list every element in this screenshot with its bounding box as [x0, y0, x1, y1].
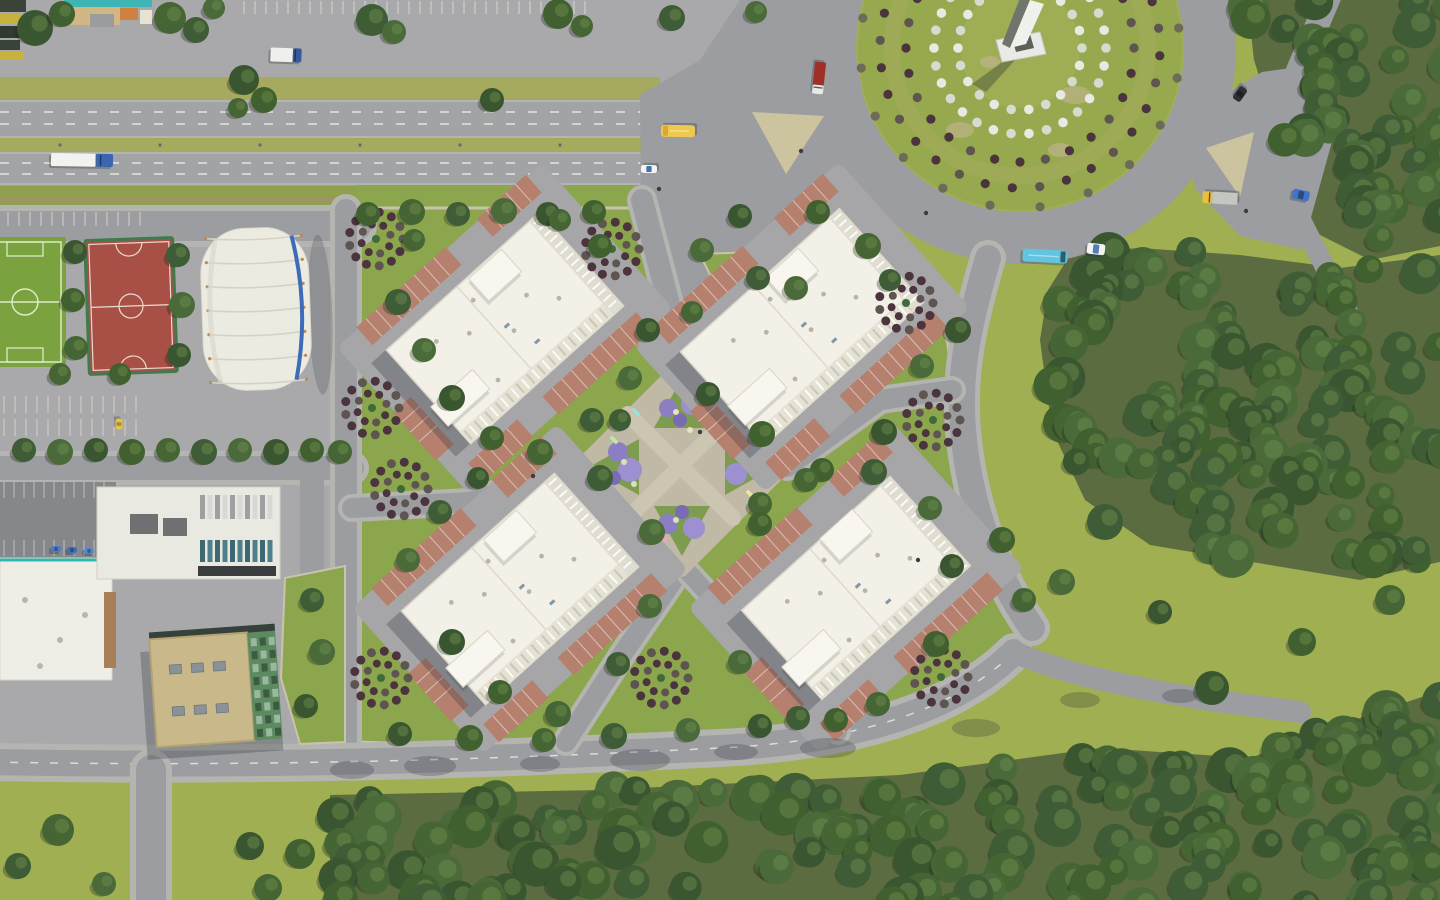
vehicle-police-car[interactable] — [641, 163, 659, 173]
game-viewport[interactable] — [0, 0, 1440, 900]
vehicle-blue-bus[interactable] — [1020, 248, 1068, 265]
vehicle-yellow-bus[interactable] — [661, 123, 697, 138]
pedestrian — [924, 211, 928, 215]
vehicle-white-van[interactable] — [1084, 242, 1105, 257]
vehicle-delivery-truck[interactable] — [268, 47, 302, 64]
scene-canvas — [0, 0, 1440, 900]
office-building[interactable] — [139, 624, 284, 760]
pedestrian — [799, 149, 803, 153]
pedestrian — [916, 558, 920, 562]
pedestrian — [531, 474, 535, 478]
pedestrian — [1244, 209, 1248, 213]
basketball-court[interactable] — [85, 238, 178, 375]
sports-dome[interactable] — [199, 225, 335, 398]
vehicle-harvester[interactable] — [1202, 189, 1240, 205]
pedestrian — [657, 187, 661, 191]
store-roof — [0, 558, 112, 680]
vehicle-semi-truck[interactable] — [49, 153, 113, 169]
pedestrian — [698, 430, 702, 434]
